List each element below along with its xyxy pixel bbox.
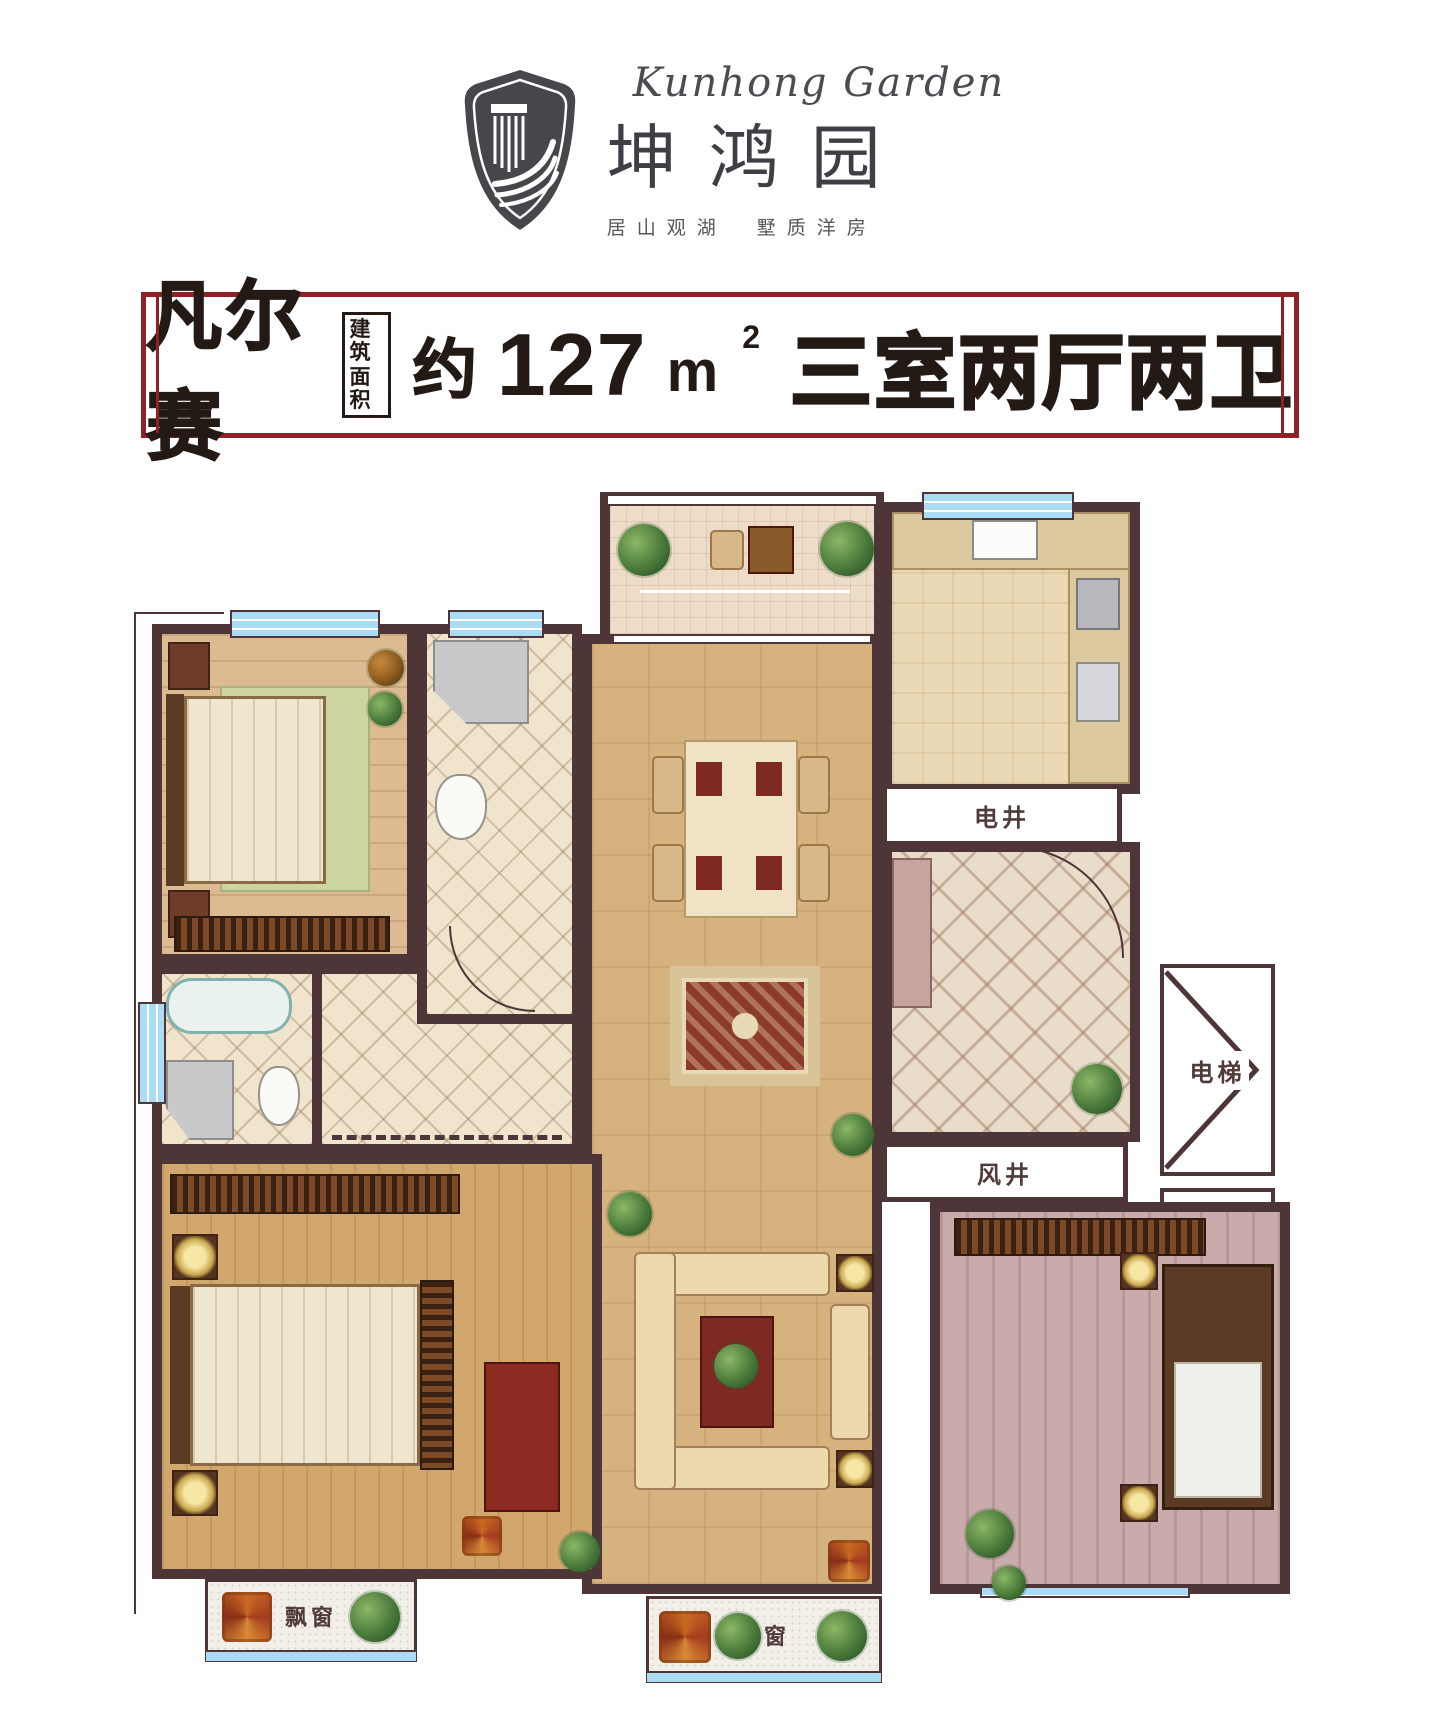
brand-tagline: 居山观湖 墅质洋房	[607, 213, 979, 240]
bedroom1-nightstand-top	[168, 642, 210, 690]
bedroom1-plant-orange	[368, 650, 404, 686]
building-area-label-box: 建筑 面积	[342, 312, 391, 417]
bedroom2-lamp-top	[172, 1234, 218, 1280]
elevator: 电梯	[1160, 964, 1275, 1176]
dining-chair-2	[652, 844, 684, 902]
area-unit: m	[667, 338, 719, 405]
brand-name-english: Kunhong Garden	[633, 60, 1005, 106]
bedroom1-headboard	[166, 694, 184, 886]
sofa-left	[634, 1252, 676, 1490]
dining-table	[684, 740, 798, 918]
area-value: 127	[497, 314, 647, 416]
balcony-table	[748, 526, 794, 574]
balcony-plant-right	[820, 522, 874, 576]
bay-window-bottom: 飘窗	[646, 1596, 882, 1674]
balcony-railing	[606, 494, 878, 506]
placemat-2	[754, 760, 784, 798]
bedroom-right-planter-plant	[992, 1566, 1026, 1600]
bedroom2-lamp-bottom	[172, 1470, 218, 1516]
dining-chair-1	[652, 756, 684, 814]
area-label-top: 建筑	[350, 318, 383, 364]
bath1-shower-mat	[433, 640, 529, 724]
kitchen-passage-opening	[872, 652, 877, 792]
window-bath1	[448, 610, 544, 638]
living-flower-deco	[828, 1540, 870, 1582]
bath1-door-arc	[449, 926, 535, 1012]
corridor-opening-dashed	[332, 1135, 562, 1140]
living-dining-room	[582, 634, 882, 1594]
shield-logo-icon	[461, 68, 579, 232]
kitchen-appliance	[1076, 662, 1120, 722]
kitchen-stove	[1076, 578, 1120, 630]
bedroom1-dresser	[174, 916, 390, 952]
outer-frame-line-left	[134, 612, 136, 1614]
kitchen	[882, 502, 1140, 794]
balcony	[600, 492, 884, 644]
balcony-sliding-opening	[612, 634, 872, 644]
bath1-toilet	[435, 774, 487, 840]
window-bath2-left	[138, 1002, 166, 1104]
wind-shaft-label: 风井	[977, 1155, 1033, 1190]
bedroom2-plant	[560, 1532, 600, 1572]
placemat-1	[694, 760, 724, 798]
outer-frame-line-top	[134, 612, 224, 614]
coffee-table-plant	[714, 1344, 758, 1388]
living-plant-right	[832, 1114, 874, 1156]
dining-chair-3	[798, 756, 830, 814]
entry-door-arc	[1012, 846, 1124, 958]
bay-window-left: 飘窗	[205, 1579, 417, 1653]
unit-name: 凡尔赛	[146, 255, 320, 475]
brand-name-chinese: 坤鸿园	[607, 102, 979, 203]
kitchen-sink	[972, 520, 1038, 560]
bedroom-right-bed-mattress	[1174, 1362, 1262, 1498]
elevator-label: 电梯	[1187, 1051, 1249, 1090]
bedroom1-bed	[184, 696, 326, 884]
bedroom2-wardrobe	[170, 1174, 460, 1214]
entry-cabinet	[892, 858, 932, 1008]
sofa-top	[658, 1252, 830, 1296]
room-configuration: 三室两厅两卫	[790, 306, 1294, 425]
bay-left-flower	[222, 1592, 272, 1642]
bay-bottom-flower	[659, 1611, 711, 1663]
bedroom-right-lamp-top	[1120, 1252, 1158, 1290]
placemat-3	[694, 854, 724, 892]
area-approx: 约	[413, 319, 477, 411]
dining-chair-4	[798, 844, 830, 902]
bathroom-top	[417, 624, 582, 1024]
brand-logo: Kunhong Garden 坤鸿园 居山观湖 墅质洋房	[0, 0, 1440, 240]
bedroom-right	[930, 1202, 1290, 1594]
placemat-4	[754, 854, 784, 892]
area-label-bottom: 面积	[350, 366, 383, 412]
bedroom-right-lamp-bottom	[1120, 1484, 1158, 1522]
window-bedroom1	[230, 610, 380, 638]
balcony-plant-left	[618, 524, 670, 576]
entry-plant	[1072, 1064, 1122, 1114]
side-lamp-bottom	[836, 1450, 874, 1488]
bedroom2-flower-deco	[462, 1516, 502, 1556]
bath2-tub	[166, 978, 292, 1034]
living-rug	[670, 966, 820, 1086]
electric-shaft: 电井	[882, 784, 1122, 846]
balcony-chair	[710, 530, 744, 570]
balcony-floor-line	[640, 590, 850, 593]
bay-bottom-plant-left	[715, 1613, 761, 1659]
bedroom2-bed	[190, 1284, 420, 1466]
electric-shaft-label: 电井	[974, 798, 1030, 833]
bedroom2-tv-cabinet	[484, 1362, 560, 1512]
bay-window-left-label: 飘窗	[285, 1600, 337, 1632]
entry-hall	[882, 842, 1140, 1142]
unit-title-banner: 凡尔赛 建筑 面积 约 127 m 2 三室两厅两卫	[141, 292, 1299, 438]
bedroom-right-wardrobe	[954, 1218, 1206, 1256]
bay-left-plant	[350, 1592, 400, 1642]
area-exponent: 2	[742, 319, 760, 356]
bedroom2-headboard	[170, 1286, 190, 1464]
sofa-bottom	[658, 1446, 830, 1490]
bath2-shower	[166, 1060, 234, 1140]
living-plant-left	[608, 1192, 652, 1236]
wind-shaft: 风井	[882, 1142, 1128, 1202]
bedroom-bottom-left	[152, 1154, 602, 1579]
side-lamp-top	[836, 1254, 874, 1292]
bath2-toilet	[258, 1066, 300, 1126]
bay-bottom-plant-right	[817, 1611, 867, 1661]
floor-plan: 电井 风井 电梯	[130, 484, 1310, 1727]
bedroom-right-plant	[966, 1510, 1014, 1558]
sofa-chaise-right	[830, 1304, 870, 1440]
bathroom-left	[152, 964, 322, 1154]
bedroom1-plant-green	[368, 692, 402, 726]
bedroom-top-left	[152, 624, 417, 964]
bedroom2-footboard	[420, 1280, 454, 1470]
window-kitchen	[922, 492, 1074, 520]
